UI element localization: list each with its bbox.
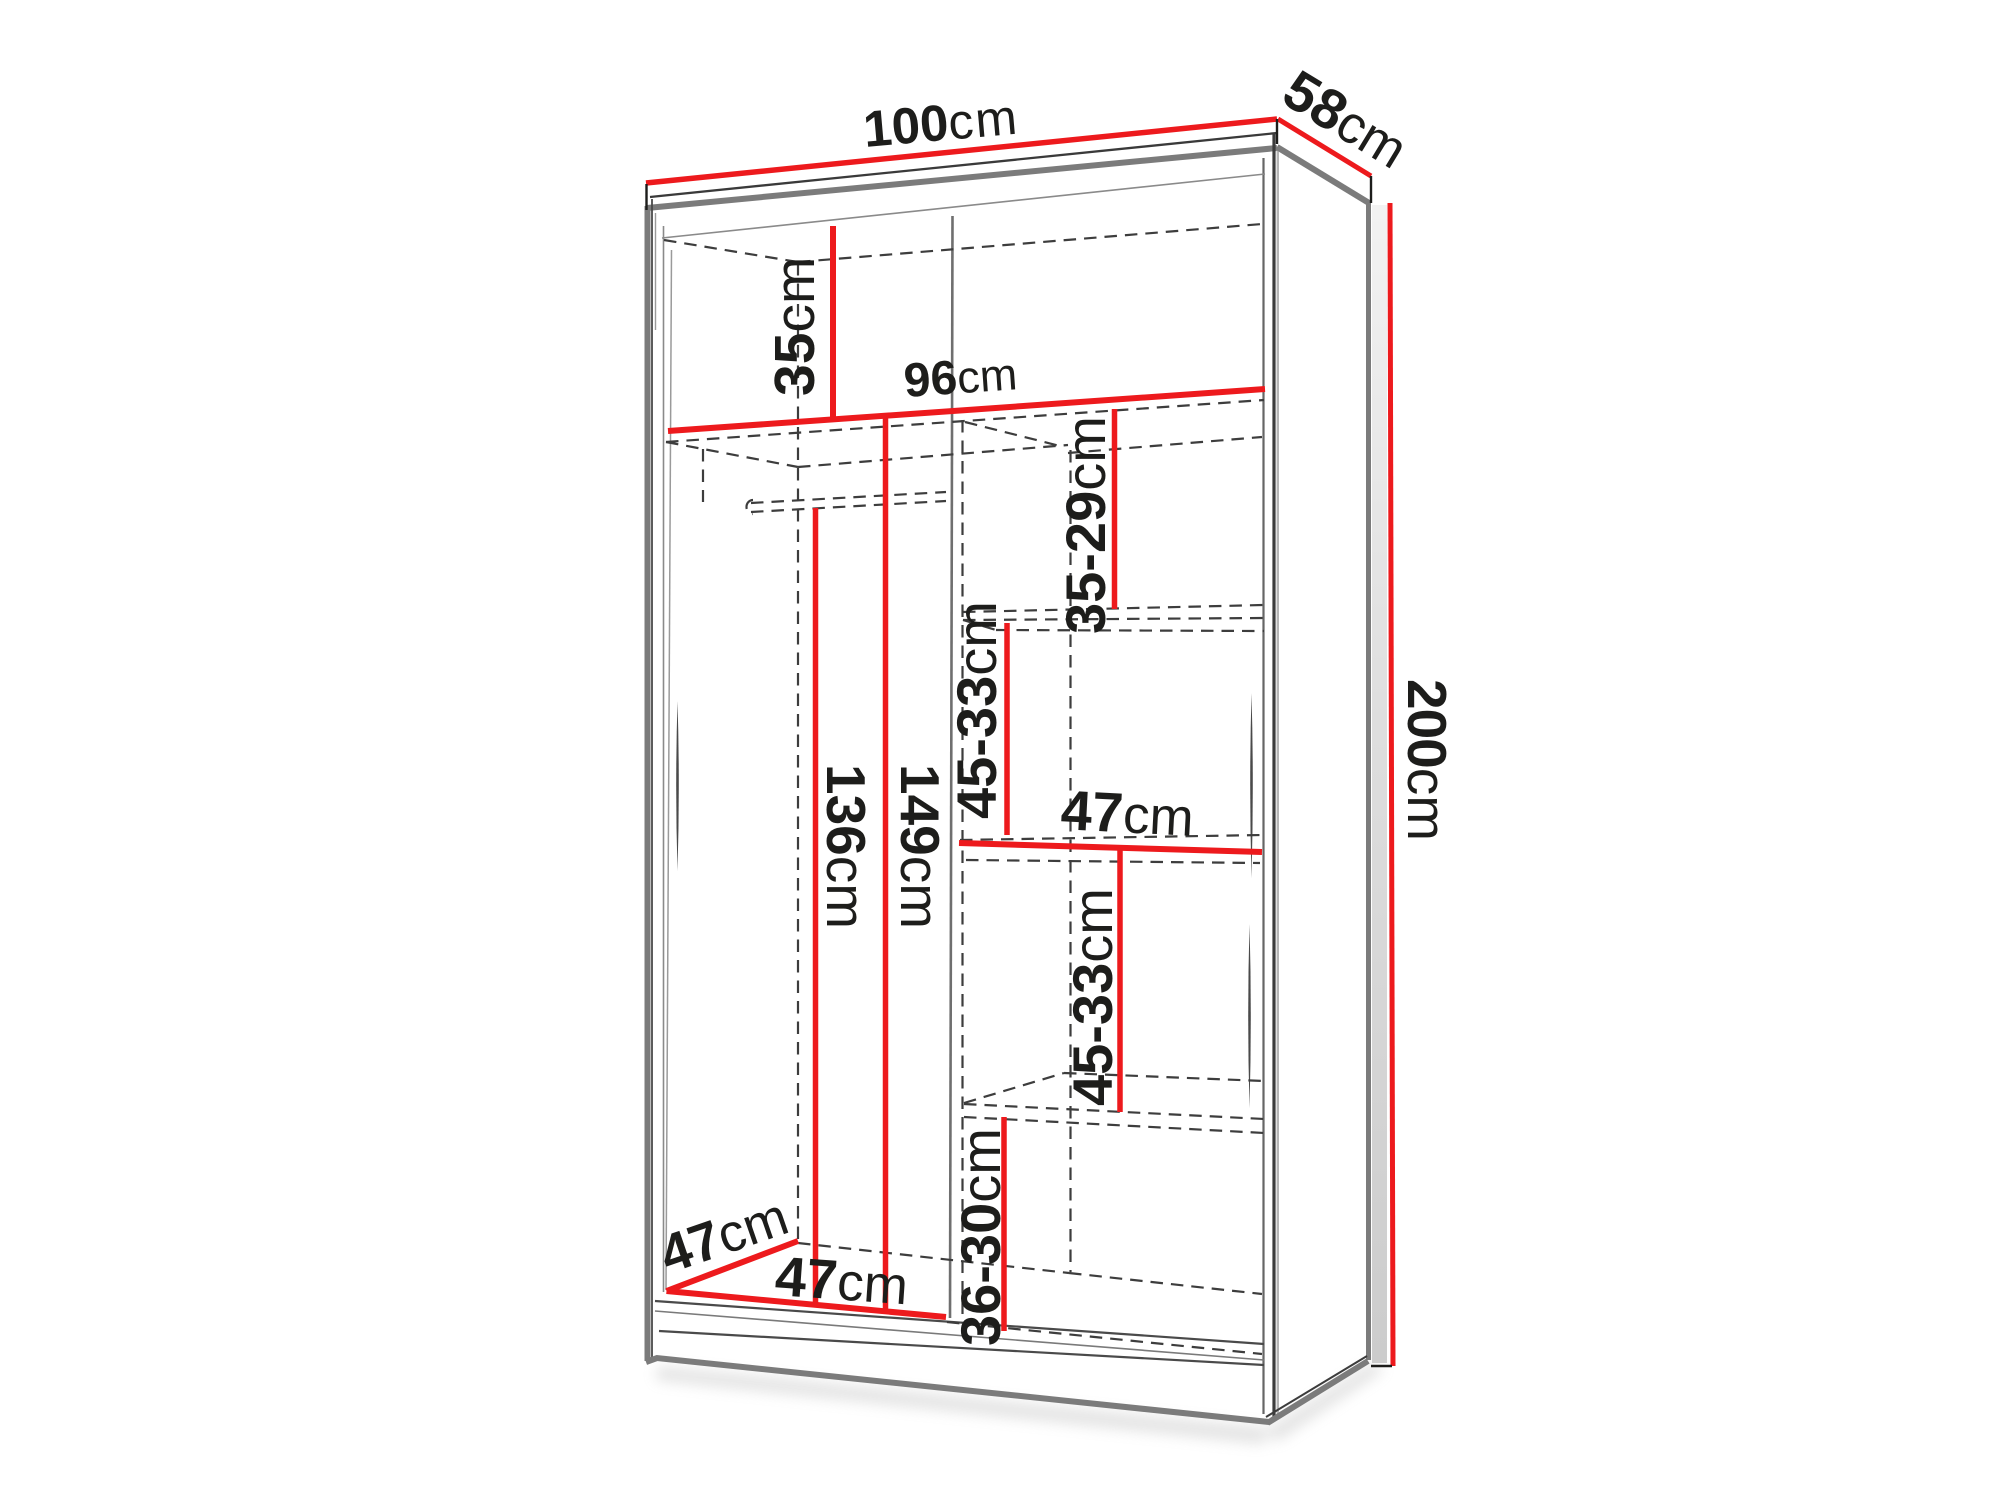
- svg-text:45-33cm: 45-33cm: [1061, 888, 1124, 1106]
- svg-text:45-33cm: 45-33cm: [945, 601, 1008, 819]
- svg-text:35cm: 35cm: [763, 257, 827, 396]
- svg-text:35-29cm: 35-29cm: [1054, 416, 1117, 634]
- svg-text:200cm: 200cm: [1396, 679, 1458, 841]
- svg-text:136cm: 136cm: [815, 764, 877, 929]
- svg-text:47cm: 47cm: [1059, 778, 1195, 848]
- svg-text:96cm: 96cm: [902, 347, 1019, 408]
- svg-text:36-30cm: 36-30cm: [949, 1128, 1012, 1346]
- svg-text:149cm: 149cm: [889, 764, 951, 929]
